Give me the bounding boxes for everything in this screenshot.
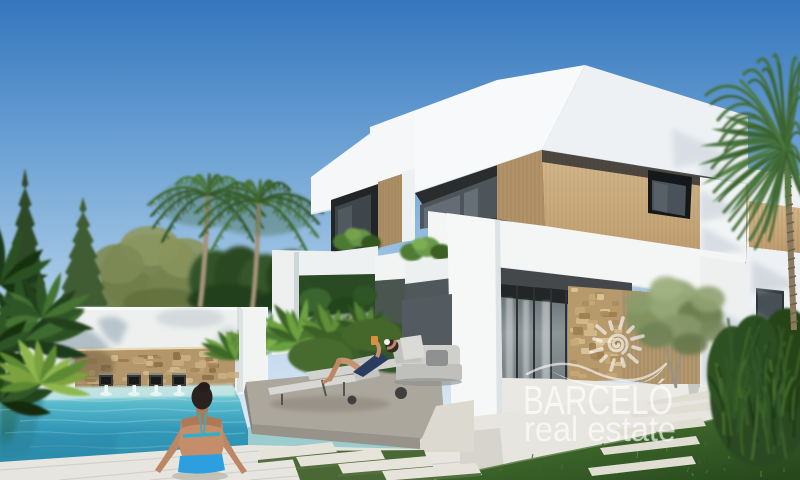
svg-text:real estate: real estate [524, 410, 676, 449]
